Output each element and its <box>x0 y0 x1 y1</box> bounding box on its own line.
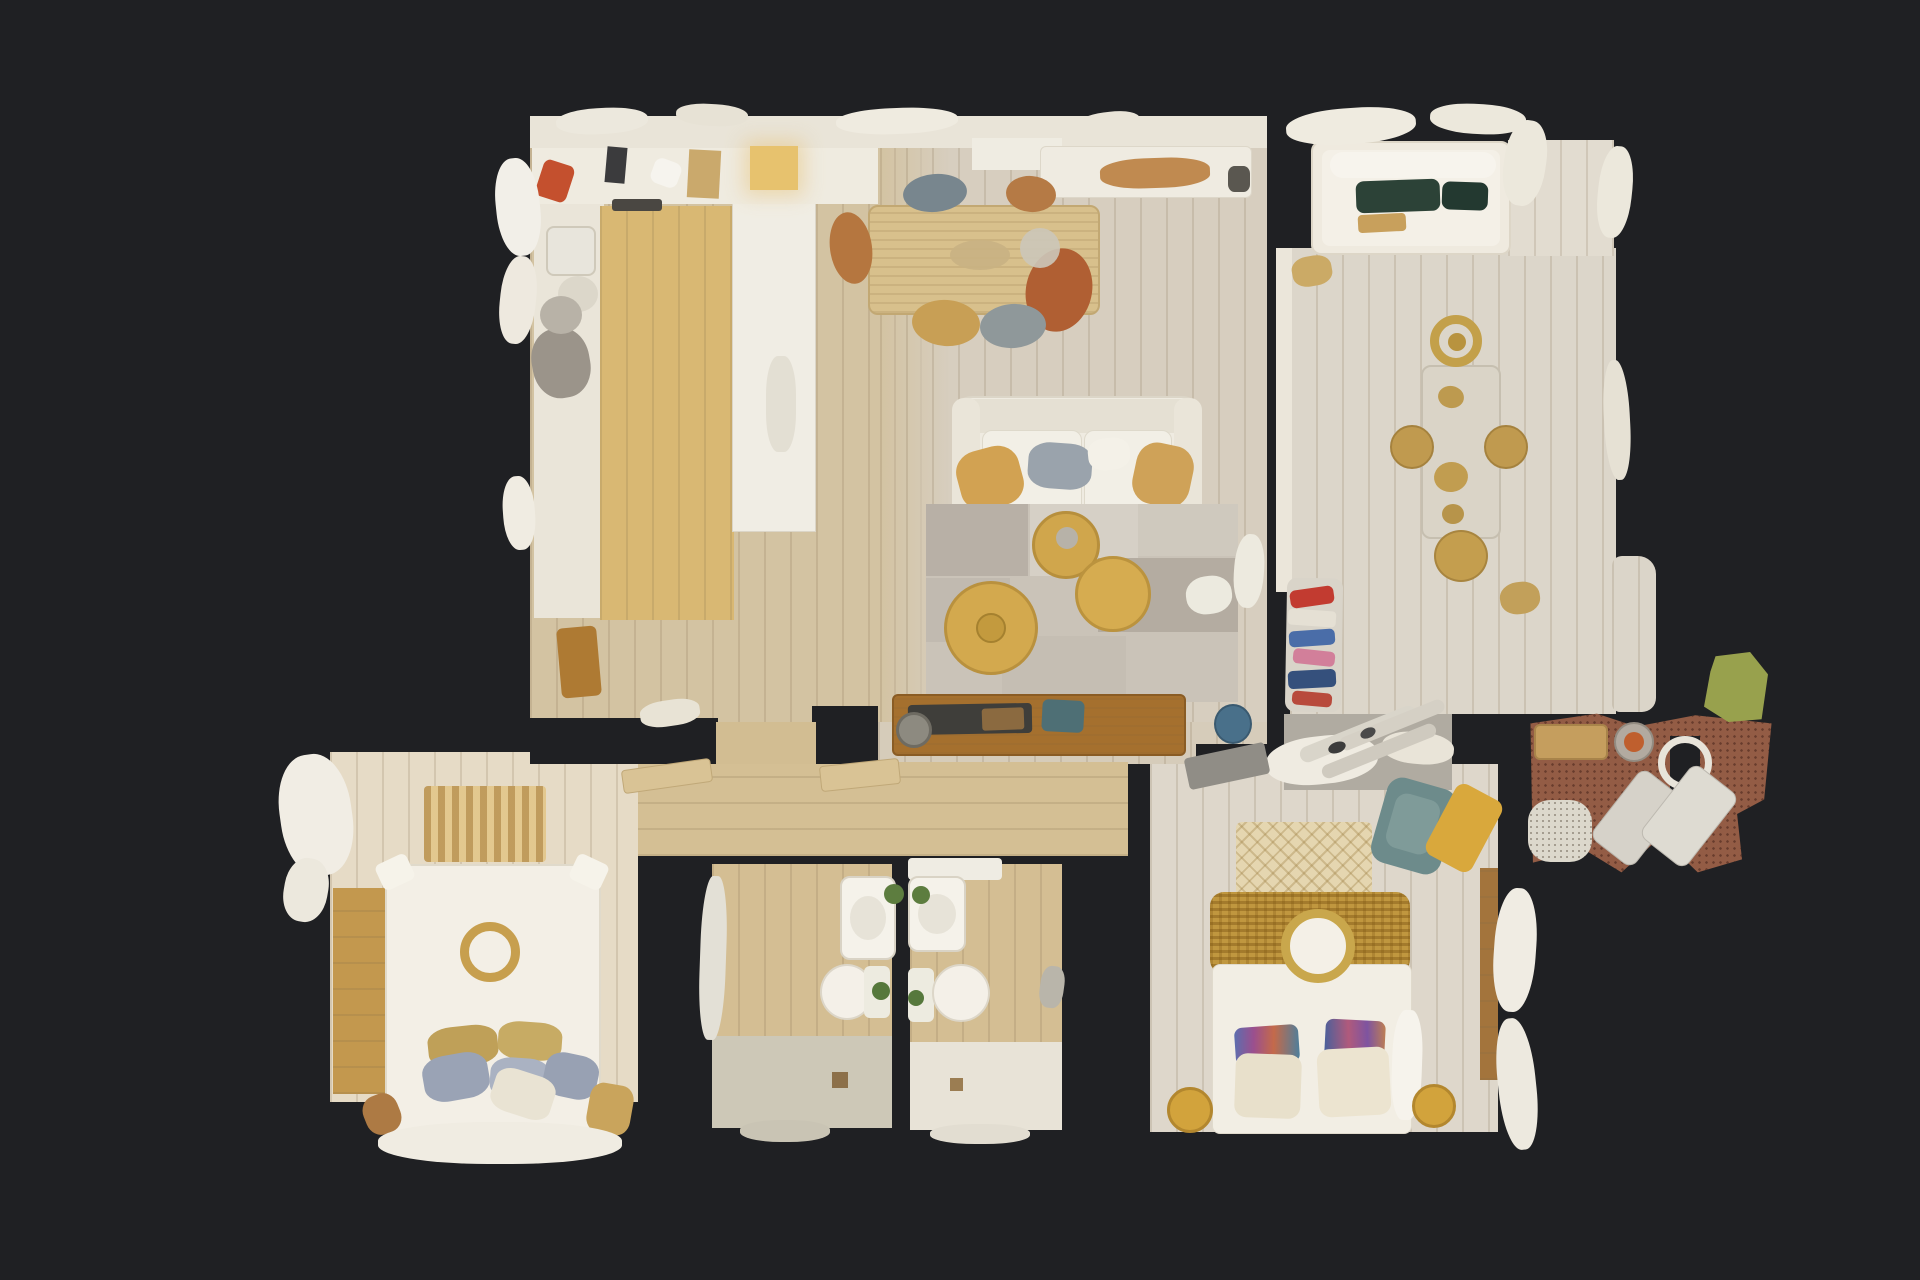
master-gold-ring-decor <box>1281 909 1355 983</box>
bathroom-right-drain <box>950 1078 963 1091</box>
balcony-pebble-patch <box>1528 800 1592 862</box>
colorful-item-navy <box>1288 669 1337 689</box>
colorful-item-white <box>1288 608 1337 627</box>
tr-bed-white-roll <box>1330 152 1496 178</box>
balcony-orange-item <box>1624 732 1644 752</box>
bathroom-right-bottom-edge <box>930 1124 1030 1144</box>
master-pillow-cream-2 <box>1316 1046 1391 1118</box>
top-console-dark-item <box>1228 166 1250 192</box>
dollhouse-floorplan-viewer[interactable] <box>0 0 1920 1280</box>
console-book <box>982 707 1025 730</box>
rug-patch-6 <box>1138 504 1238 556</box>
gold-kettle <box>976 613 1006 643</box>
dining-room-floor-extension <box>1612 556 1656 712</box>
master-curtain-2 <box>1491 1016 1543 1151</box>
gold-chair-east <box>1484 425 1528 469</box>
dining-table-decor-2 <box>1020 228 1060 268</box>
gold-pouf <box>1434 530 1488 582</box>
left-bedroom-wood-band <box>333 888 391 1094</box>
kitchen-sink <box>546 226 596 276</box>
kitchen-island <box>732 148 816 532</box>
colorful-item-blue <box>1288 628 1335 647</box>
chandelier-center <box>1448 333 1466 351</box>
console-teal-object <box>1041 699 1085 733</box>
balcony-wood-bench <box>1534 724 1608 760</box>
left-bed-bottom-blob <box>378 1122 622 1164</box>
tr-bed-wood-bits <box>1358 213 1407 233</box>
wall-living-bottom-mid <box>812 706 878 764</box>
floorplan-scene <box>0 0 1920 1280</box>
left-bed-gold-wreath <box>460 922 520 982</box>
master-rug <box>1236 822 1372 900</box>
bathroom-right-toilet <box>932 964 990 1022</box>
bathroom-plant-3 <box>912 886 930 904</box>
bathroom-left-shower-floor <box>712 1036 892 1128</box>
dining-room-left-wall-band <box>1276 248 1292 592</box>
sofa-pillow-bluegray <box>1026 441 1093 491</box>
master-lamp-left <box>1167 1087 1213 1133</box>
bathroom-plant-1 <box>884 884 904 904</box>
bathroom-plant-2 <box>872 982 890 1000</box>
table-gold-decor-3 <box>1442 504 1464 524</box>
tr-bed-green-pillow-1 <box>1355 179 1440 214</box>
gold-chair-west <box>1390 425 1434 469</box>
lit-doorway <box>750 146 798 190</box>
master-pillow-cream-1 <box>1234 1053 1302 1119</box>
grass-patch <box>1704 652 1768 722</box>
kitchen-gray-pile-2 <box>540 296 582 334</box>
console-bowl <box>896 712 932 748</box>
bathroom-plant-4 <box>908 990 924 1006</box>
coffee-table-mid <box>1075 556 1151 632</box>
left-bedroom-striped-rug <box>424 786 546 862</box>
bathroom-left-drain <box>832 1072 848 1088</box>
tr-bed-green-pillow-2 <box>1442 181 1489 211</box>
bathroom-left-bottom-edge <box>740 1120 830 1142</box>
rug-patch-1 <box>926 504 1028 576</box>
bathroom-left-sink-basin <box>850 896 886 940</box>
blue-vase <box>1214 704 1252 744</box>
kitchen-dark-item <box>604 146 627 184</box>
dining-table-decor <box>950 240 1010 270</box>
island-counter-marks <box>766 356 796 452</box>
left-wall-wood-item <box>556 625 602 698</box>
small-kettle <box>1056 527 1078 549</box>
wall-living-bottom-left <box>530 718 718 764</box>
kitchen-tan-box <box>687 149 721 199</box>
corridor-door-gap-floor <box>716 722 816 764</box>
kitchen-yellow-floor <box>600 206 734 620</box>
bathroom-right-tile-floor <box>910 1042 1062 1130</box>
kitchen-dark-bar <box>612 199 662 211</box>
master-lamp-right <box>1412 1084 1456 1128</box>
sofa-back <box>958 399 1196 433</box>
